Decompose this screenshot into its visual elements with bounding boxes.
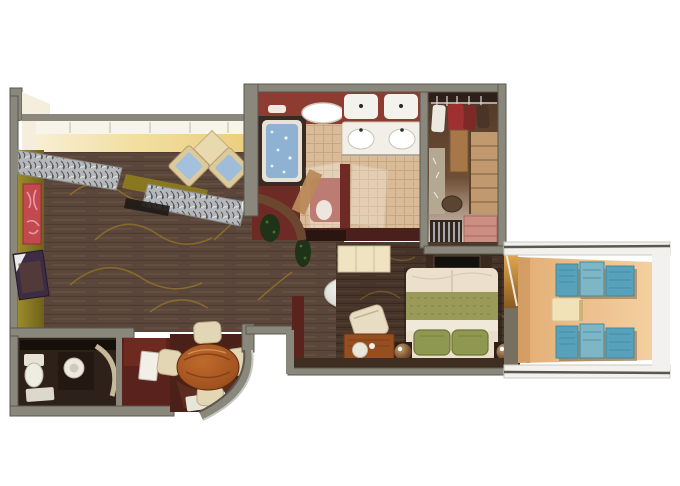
bath-closet-top-wall — [244, 84, 506, 92]
window-band — [36, 121, 248, 134]
double-sink-counter — [342, 122, 422, 156]
hall-plant-2 — [295, 237, 311, 267]
walk-in-closet — [428, 92, 498, 248]
ceiling-light — [302, 103, 344, 123]
balcony-floor-shadow — [518, 257, 530, 363]
step-wall — [286, 330, 294, 374]
bathroom-left-wall — [244, 84, 258, 216]
living-bottom-wall — [10, 328, 134, 338]
lower-left-bottom-wall — [10, 406, 174, 416]
vanity-mirror — [342, 92, 422, 122]
wall-light — [268, 105, 286, 113]
mid-shelves — [450, 130, 468, 172]
dining-nook — [156, 321, 292, 420]
window-wall — [22, 114, 248, 121]
round-sink — [58, 352, 94, 390]
ottoman-bench — [442, 196, 462, 212]
master-bathroom — [252, 90, 424, 242]
balcony-top-wall — [504, 242, 670, 255]
left-outer-wall — [10, 96, 18, 338]
toilet — [24, 354, 44, 387]
lounge-chair-top — [556, 262, 637, 299]
closet-bottom-wall — [424, 246, 506, 254]
planter — [260, 214, 280, 242]
closet-right-wall — [498, 84, 506, 254]
floor-plan — [0, 0, 680, 486]
hall-bottom-wall — [246, 326, 292, 334]
red-wall-art — [23, 184, 41, 244]
bath-closet-divider-wall — [420, 92, 428, 248]
nightstand-lamp-left — [395, 344, 412, 361]
bath-mat — [26, 387, 55, 402]
shelving-unit — [470, 132, 498, 214]
bathroom-doorway — [306, 230, 346, 241]
guest-bath-left-wall — [10, 336, 18, 416]
balcony-right-wall — [652, 248, 670, 370]
partition-wall — [340, 164, 350, 228]
framed-picture — [13, 250, 49, 300]
bedroom-right-wall — [504, 306, 518, 368]
balcony — [504, 242, 670, 378]
double-bed — [404, 268, 502, 368]
vestibule-divider-wall — [116, 336, 122, 410]
guest-bathroom — [10, 328, 134, 416]
minibar-cabinet — [338, 246, 390, 272]
whirlpool-tub — [258, 116, 306, 186]
dining-chair-top — [193, 321, 221, 344]
entry-door — [139, 351, 160, 381]
oval-dining-table — [177, 344, 239, 390]
side-table — [552, 298, 583, 321]
bedroom-bottom-wall-outer — [288, 368, 520, 375]
glass-partition-right — [350, 164, 388, 228]
bedroom-bottom-wall — [288, 358, 520, 368]
closet-top-shadow — [428, 92, 498, 102]
lounge-chair-bottom — [556, 324, 637, 361]
